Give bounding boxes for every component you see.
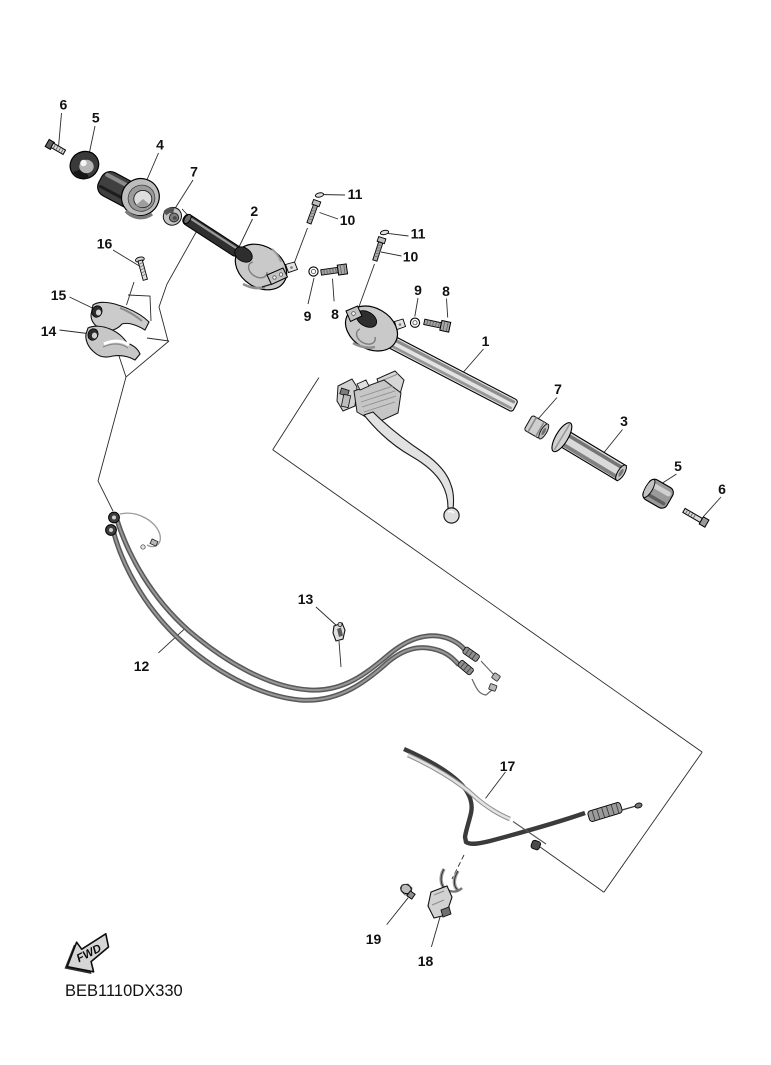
svg-text:3: 3 [620, 413, 628, 429]
svg-text:9: 9 [414, 282, 422, 298]
svg-text:5: 5 [674, 458, 682, 474]
svg-text:11: 11 [411, 226, 426, 242]
svg-text:17: 17 [500, 758, 516, 774]
svg-text:6: 6 [60, 97, 68, 113]
svg-text:18: 18 [418, 953, 434, 969]
svg-text:13: 13 [298, 591, 314, 607]
svg-text:14: 14 [41, 323, 57, 339]
svg-text:10: 10 [340, 212, 356, 228]
svg-text:7: 7 [190, 164, 198, 180]
svg-text:12: 12 [134, 658, 150, 674]
svg-text:9: 9 [304, 308, 312, 324]
svg-text:16: 16 [97, 236, 113, 252]
svg-text:7: 7 [554, 381, 562, 397]
svg-text:11: 11 [348, 186, 363, 202]
svg-text:BEB1110DX330: BEB1110DX330 [65, 982, 183, 1000]
svg-text:2: 2 [250, 203, 258, 219]
svg-text:1: 1 [482, 333, 490, 349]
svg-text:5: 5 [92, 110, 100, 126]
svg-text:8: 8 [331, 306, 339, 322]
svg-text:10: 10 [403, 249, 419, 265]
svg-text:4: 4 [156, 137, 164, 153]
svg-text:6: 6 [718, 481, 726, 497]
svg-text:19: 19 [366, 931, 382, 947]
svg-text:8: 8 [442, 283, 450, 299]
svg-text:15: 15 [51, 287, 67, 303]
